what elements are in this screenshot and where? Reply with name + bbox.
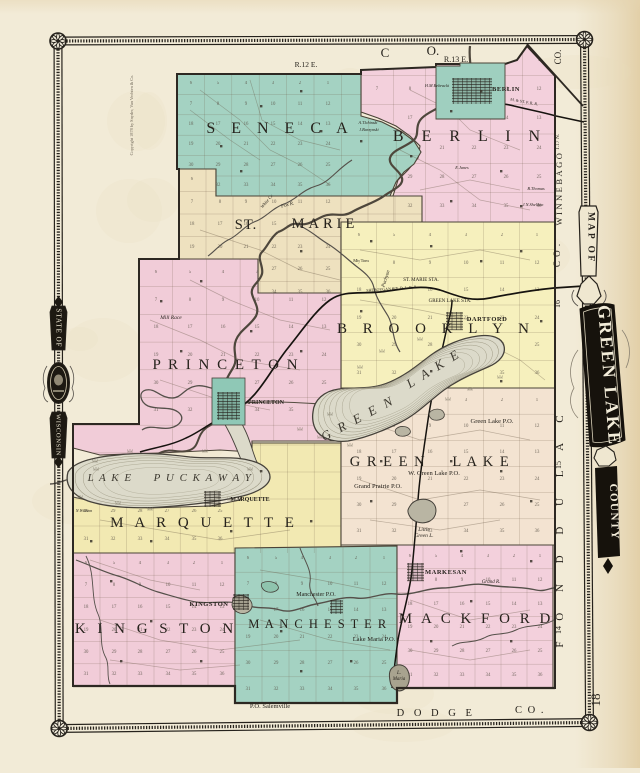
svg-text:10: 10 [272,200,277,205]
svg-text:34: 34 [486,673,491,678]
svg-text:Grand R.: Grand R. [482,580,501,585]
svg-text:32: 32 [111,537,116,542]
svg-text:16: 16 [221,325,226,330]
svg-text:27: 27 [328,661,333,666]
svg-text:16: 16 [553,300,562,308]
svg-text:25: 25 [535,343,540,348]
svg-text:15: 15 [255,325,260,330]
svg-text:15: 15 [272,222,277,227]
svg-text:MARQUETTE: MARQUETTE [230,497,269,503]
svg-text:MARIE: MARIE [292,216,359,232]
svg-text:10: 10 [271,102,276,107]
svg-text:DARTFORD: DARTFORD [467,316,508,323]
svg-text:Mill Race: Mill Race [159,315,182,321]
svg-text:J.Barzynski: J.Barzynski [359,127,379,132]
svg-text:11: 11 [192,583,197,588]
svg-text:Lake Maria P.O.: Lake Maria P.O. [353,636,396,643]
svg-text:27: 27 [166,650,171,655]
svg-text:25: 25 [538,649,543,654]
svg-text:F O N D D U L A C: F O N D D U L A C [554,406,566,647]
svg-text:19: 19 [357,477,362,482]
svg-text:30: 30 [357,343,362,348]
svg-text:32: 32 [216,183,221,188]
svg-text:H.M.Rebracki: H.M.Rebracki [424,83,450,88]
svg-text:34: 34 [255,408,260,413]
svg-text:T.17 N.: T.17 N. [555,133,561,150]
svg-text:36: 36 [220,672,225,677]
svg-text:C: C [381,45,390,60]
svg-text:N.Willson: N.Willson [75,508,92,513]
svg-text:WINNEBAGO: WINNEBAGO [554,151,564,226]
svg-text:16: 16 [460,602,465,607]
svg-text:G R E E N L A K E: G R E E N L A K E [350,454,510,470]
svg-text:29: 29 [274,661,279,666]
svg-text:19: 19 [190,245,195,250]
svg-text:32: 32 [392,371,397,376]
svg-text:23: 23 [298,142,303,147]
svg-text:11: 11 [512,578,517,583]
svg-text:21: 21 [428,477,433,482]
svg-text:34: 34 [472,204,477,209]
svg-text:17: 17 [218,222,223,227]
svg-text:25: 25 [322,381,327,386]
svg-text:10: 10 [464,261,469,266]
svg-text:Grand Prairie P.O.: Grand Prairie P.O. [354,483,402,490]
svg-text:27: 27 [255,381,260,386]
svg-text:22: 22 [472,146,477,151]
svg-text:24: 24 [535,316,540,321]
svg-text:36: 36 [382,687,387,692]
svg-text:18: 18 [189,122,194,127]
svg-text:27: 27 [472,175,477,180]
svg-text:E.Janes: E.Janes [454,165,469,170]
svg-text:29: 29 [392,503,397,508]
svg-text:31: 31 [246,687,251,692]
svg-text:24: 24 [535,477,540,482]
svg-text:12: 12 [326,102,331,107]
svg-text:14: 14 [500,288,505,293]
svg-text:14: 14 [554,626,563,634]
svg-text:24: 24 [322,353,327,358]
svg-text:B.Thomas: B.Thomas [527,186,545,191]
svg-text:15: 15 [464,288,469,293]
svg-text:33: 33 [244,183,249,188]
svg-text:18: 18 [84,605,89,610]
svg-text:R.13 E.: R.13 E. [444,55,468,64]
svg-text:20: 20 [274,635,279,640]
svg-text:11: 11 [354,582,359,587]
svg-text:25: 25 [220,650,225,655]
svg-text:D O D G E: D O D G E [397,708,476,719]
svg-text:31: 31 [84,672,89,677]
svg-text:25: 25 [326,163,331,168]
svg-text:20: 20 [392,477,397,482]
svg-text:25: 25 [218,509,223,514]
svg-text:WISCONSIN: WISCONSIN [55,414,62,456]
svg-text:33: 33 [440,204,445,209]
svg-text:Manchester P.O.: Manchester P.O. [296,592,336,598]
svg-text:28: 28 [138,509,143,514]
svg-text:11: 11 [298,200,303,205]
svg-text:30: 30 [246,661,251,666]
svg-text:21: 21 [300,635,305,640]
svg-text:B R O O K L Y N: B R O O K L Y N [337,321,535,337]
svg-text:COUNTY: COUNTY [607,483,621,540]
svg-text:33: 33 [138,672,143,677]
svg-text:26: 26 [289,381,294,386]
svg-text:12: 12 [535,261,540,266]
svg-text:26: 26 [192,509,197,514]
svg-text:12: 12 [535,424,540,429]
svg-text:M A R Q U E T T E: M A R Q U E T T E [110,515,298,531]
svg-text:26: 26 [192,650,197,655]
svg-text:GREEN LAKE STA.: GREEN LAKE STA. [429,299,472,304]
svg-text:P R I N C E T O N: P R I N C E T O N [152,357,299,373]
svg-text:35: 35 [298,183,303,188]
svg-text:34: 34 [165,537,170,542]
svg-text:28: 28 [460,649,465,654]
svg-text:30: 30 [154,381,159,386]
svg-text:Green Lake P.O.: Green Lake P.O. [471,418,514,425]
svg-text:33: 33 [460,673,465,678]
svg-text:27: 27 [272,267,277,272]
svg-text:CO.: CO. [553,50,563,65]
svg-text:23: 23 [500,477,505,482]
svg-text:BERLIN: BERLIN [492,86,520,93]
svg-text:35: 35 [192,537,197,542]
svg-text:33: 33 [138,537,143,542]
svg-text:12: 12 [326,200,331,205]
svg-text:PRINCETON: PRINCETON [248,400,285,406]
svg-text:22: 22 [464,477,469,482]
svg-text:29: 29 [111,509,116,514]
svg-text:21: 21 [440,146,445,151]
svg-text:28: 28 [300,661,305,666]
svg-text:34: 34 [464,529,469,534]
svg-text:14: 14 [289,325,294,330]
svg-text:11: 11 [289,298,294,303]
svg-text:31: 31 [357,371,362,376]
svg-text:13: 13 [382,608,387,613]
svg-text:M A N C H E S T E R: M A N C H E S T E R [248,617,388,631]
svg-text:23: 23 [298,245,303,250]
svg-text:15: 15 [486,602,491,607]
svg-text:34: 34 [272,290,277,295]
svg-text:13: 13 [538,602,543,607]
svg-text:29: 29 [408,175,413,180]
svg-text:26: 26 [500,503,505,508]
svg-text:27: 27 [165,509,170,514]
svg-text:ST.: ST. [235,217,257,233]
svg-text:18: 18 [154,325,159,330]
svg-text:34: 34 [328,687,333,692]
svg-text:KINGSTON: KINGSTON [190,601,229,608]
svg-text:18: 18 [408,602,413,607]
svg-text:28: 28 [440,175,445,180]
svg-text:32: 32 [188,408,193,413]
svg-text:19: 19 [246,635,251,640]
svg-text:ST. MARIE STA.: ST. MARIE STA. [403,278,439,283]
svg-text:31: 31 [154,408,159,413]
svg-text:MAP OF: MAP OF [586,212,596,264]
svg-text:36: 36 [535,529,540,534]
svg-text:28: 28 [244,163,249,168]
svg-text:14: 14 [512,602,517,607]
svg-text:35: 35 [354,687,359,692]
svg-text:M A C K F O R D: M A C K F O R D [399,611,554,627]
svg-text:35: 35 [298,290,303,295]
svg-text:12: 12 [382,582,387,587]
svg-text:O.: O. [427,43,440,58]
svg-text:L A K E P U C K A W A Y: L A K E P U C K A W A Y [87,472,253,484]
svg-text:30: 30 [357,503,362,508]
svg-text:34: 34 [271,183,276,188]
svg-text:14: 14 [354,608,359,613]
svg-text:35: 35 [512,673,517,678]
svg-text:MARKESAN: MARKESAN [425,569,467,576]
svg-text:28: 28 [428,343,433,348]
svg-text:31: 31 [84,537,89,542]
svg-text:15: 15 [166,605,171,610]
svg-text:R.12 E.: R.12 E. [295,60,318,69]
svg-text:29: 29 [216,163,221,168]
svg-text:32: 32 [274,687,279,692]
svg-text:Maria: Maria [392,677,406,682]
svg-text:35: 35 [500,371,505,376]
svg-text:12: 12 [538,578,543,583]
svg-text:32: 32 [392,529,397,534]
svg-text:P.O. Salemville: P.O. Salemville [250,703,290,710]
svg-text:28: 28 [138,650,143,655]
svg-text:A.Tlchinski: A.Tlchinski [358,120,379,125]
svg-text:25: 25 [326,267,331,272]
svg-text:17: 17 [188,325,193,330]
svg-text:16: 16 [138,605,143,610]
svg-text:36: 36 [538,673,543,678]
svg-text:26: 26 [504,175,509,180]
svg-text:35: 35 [192,672,197,677]
svg-text:32: 32 [434,673,439,678]
svg-text:13: 13 [535,450,540,455]
svg-text:11: 11 [500,261,505,266]
svg-text:34: 34 [166,672,171,677]
svg-text:12: 12 [220,583,225,588]
svg-text:22: 22 [271,142,276,147]
svg-text:S E N E C A: S E N E C A [206,120,353,137]
svg-text:17: 17 [434,602,439,607]
svg-text:21: 21 [244,142,249,147]
svg-text:27: 27 [464,503,469,508]
svg-text:25: 25 [382,661,387,666]
svg-text:27: 27 [271,163,276,168]
svg-text:29: 29 [434,649,439,654]
svg-text:Mt. Tom: Mt. Tom [353,258,369,263]
svg-text:11: 11 [298,102,303,107]
svg-text:27: 27 [486,649,491,654]
svg-text:29: 29 [112,650,117,655]
svg-text:17: 17 [112,605,117,610]
svg-text:J.N.Sheldan: J.N.Sheldan [523,202,544,207]
svg-text:35: 35 [500,529,505,534]
svg-text:30: 30 [84,650,89,655]
svg-text:30: 30 [189,163,194,168]
svg-text:22: 22 [272,245,277,250]
svg-text:17: 17 [408,116,413,121]
svg-text:32: 32 [112,672,117,677]
svg-text:29: 29 [188,381,193,386]
svg-text:13: 13 [537,116,542,121]
svg-text:25: 25 [537,175,542,180]
svg-text:33: 33 [300,687,305,692]
svg-text:K I N G S T O N: K I N G S T O N [75,621,237,637]
svg-text:B E R L I N: B E R L I N [393,128,547,145]
svg-text:12: 12 [537,87,542,92]
svg-text:Green L.: Green L. [414,533,433,539]
svg-text:26: 26 [354,661,359,666]
svg-text:15: 15 [554,461,563,469]
svg-text:31: 31 [357,529,362,534]
svg-text:W. Green Lake P.O.: W. Green Lake P.O. [408,470,460,477]
svg-text:36: 36 [326,290,331,295]
svg-text:C O .: C O . [515,705,545,716]
svg-text:25: 25 [535,503,540,508]
svg-text:STATE OF: STATE OF [55,308,63,347]
svg-text:18: 18 [190,222,195,227]
svg-text:23: 23 [504,146,509,151]
svg-text:L.: L. [396,671,401,676]
svg-text:10: 10 [464,424,469,429]
svg-text:24: 24 [537,146,542,151]
svg-text:C O .: C O . [552,243,562,267]
svg-text:19: 19 [189,142,194,147]
svg-text:35: 35 [289,408,294,413]
svg-text:32: 32 [408,204,413,209]
